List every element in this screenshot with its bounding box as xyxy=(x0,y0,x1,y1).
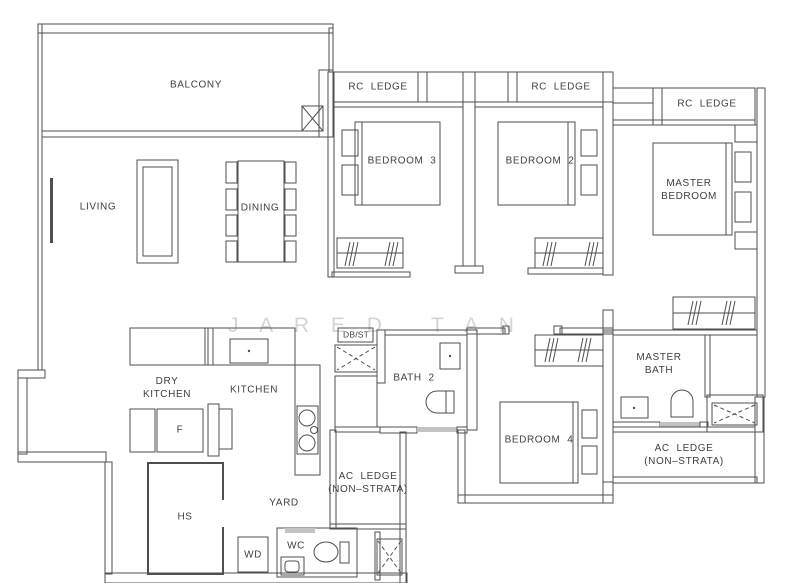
ac-ledge-left-linework xyxy=(330,427,406,583)
label-db-st: DB/ST xyxy=(343,329,369,340)
bedroom-walls xyxy=(328,72,613,332)
label-bedroom-2: BEDROOM 2 xyxy=(506,155,575,168)
master-bath-linework xyxy=(613,330,763,432)
label-fridge: F xyxy=(177,424,184,437)
label-rc-ledge-3: RC LEDGE xyxy=(677,98,736,111)
label-bedroom-4: BEDROOM 4 xyxy=(505,434,574,447)
label-dry-kitchen: DRY KITCHEN xyxy=(143,375,191,401)
label-bath-2: BATH 2 xyxy=(393,372,434,385)
kitchen-linework xyxy=(130,328,320,475)
label-ac-ledge-left: AC LEDGE (NON–STRATA) xyxy=(328,470,408,496)
label-wd: WD xyxy=(244,549,262,562)
label-ac-ledge-right: AC LEDGE (NON–STRATA) xyxy=(644,442,724,468)
label-dining: DINING xyxy=(241,202,280,215)
label-living: LIVING xyxy=(80,201,116,214)
label-balcony: BALCONY xyxy=(170,79,222,92)
master-bedroom-furniture xyxy=(653,125,757,329)
floor-plan: J A R E D T A N xyxy=(0,0,800,583)
label-rc-ledge-1: RC LEDGE xyxy=(348,81,407,94)
bedroom3-furniture xyxy=(337,122,440,268)
balcony-linework xyxy=(42,106,323,243)
label-master-bath: MASTER BATH xyxy=(636,351,681,377)
label-hs: HS xyxy=(177,511,192,524)
bedroom4-linework xyxy=(458,326,613,503)
label-yard: YARD xyxy=(269,497,298,510)
label-bedroom-3: BEDROOM 3 xyxy=(368,155,437,168)
label-rc-ledge-2: RC LEDGE xyxy=(531,81,590,94)
label-wc: WC xyxy=(287,540,305,553)
bedroom2-furniture xyxy=(498,122,603,268)
label-kitchen: KITCHEN xyxy=(230,384,278,397)
label-master-bedroom: MASTER BEDROOM xyxy=(661,177,717,203)
